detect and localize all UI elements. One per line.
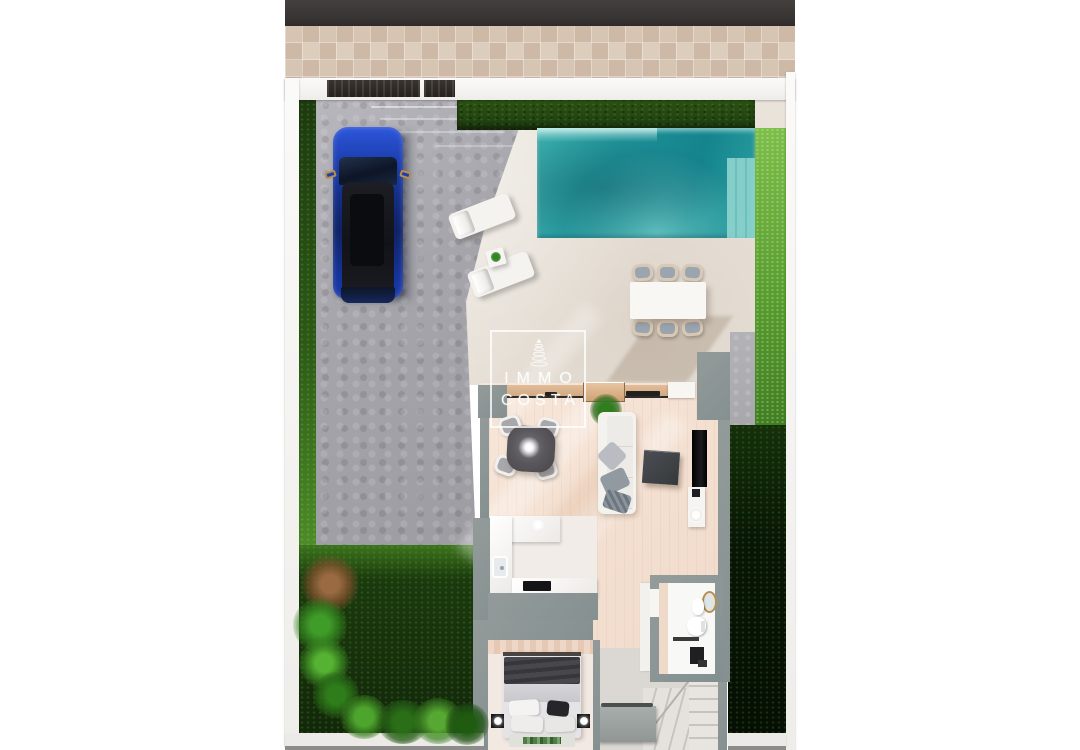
kitchen-sink xyxy=(492,556,508,578)
bath-shelf xyxy=(698,660,707,667)
curb-south-west xyxy=(285,746,484,750)
car-mirror-left xyxy=(324,169,337,179)
car-rear-window xyxy=(341,287,395,303)
wall-bedroom-north xyxy=(473,620,593,640)
wall-south-east xyxy=(728,733,786,746)
lounger-backrest xyxy=(452,210,476,238)
boundary-wall-west xyxy=(285,78,299,746)
outdoor-chair xyxy=(657,320,678,337)
outdoor-chair xyxy=(631,318,653,337)
bedroom-rug xyxy=(509,734,575,747)
blue-car xyxy=(333,127,403,299)
outdoor-chair xyxy=(681,318,703,337)
watermark-text-line2: COSTA xyxy=(492,392,584,410)
floorplan-render: IMMO COSTA xyxy=(0,0,1080,750)
round-mirror xyxy=(702,591,717,613)
outdoor-dining-table xyxy=(630,282,706,319)
bedside-lamp xyxy=(580,717,588,725)
wall-segment-white xyxy=(668,382,695,398)
swimming-pool xyxy=(537,128,755,238)
wall-kitchen-south xyxy=(488,593,598,620)
bed-pillow xyxy=(508,699,539,717)
watermark-frame: IMMO COSTA xyxy=(490,330,586,428)
hedge-west xyxy=(299,97,316,545)
pedestrian-gate xyxy=(424,80,455,97)
shrub xyxy=(445,703,489,745)
rug-pattern xyxy=(523,737,561,744)
washbasin xyxy=(692,598,704,615)
bathroom-wall-finish xyxy=(659,583,668,674)
bed-pillow xyxy=(545,716,576,733)
lighthouse-tower-icon xyxy=(528,336,550,370)
car-sunroof xyxy=(350,194,384,266)
stair-handrail xyxy=(601,703,653,707)
scene: IMMO COSTA xyxy=(285,0,795,750)
bathroom xyxy=(650,575,723,682)
bed-pillow xyxy=(511,715,544,733)
outdoor-chair xyxy=(681,263,703,281)
driveway-gate xyxy=(327,80,420,97)
round-dining-table xyxy=(506,425,556,473)
door-frame-handle xyxy=(626,391,660,396)
tiled-sidewalk xyxy=(285,26,795,78)
wall-block-northeast xyxy=(697,352,730,420)
counter-highlight xyxy=(531,520,545,530)
bed-blanket xyxy=(504,657,580,684)
speaker-box xyxy=(692,489,700,497)
bedside-lamp xyxy=(494,717,502,725)
coffee-table xyxy=(642,450,680,485)
outdoor-chair xyxy=(657,264,678,281)
bathroom-door-opening xyxy=(650,589,659,617)
shower-glass xyxy=(673,637,699,641)
bed-sheet xyxy=(504,684,580,702)
road-strip xyxy=(285,0,795,26)
tire-track xyxy=(435,145,515,147)
boundary-wall-east xyxy=(786,72,795,750)
grass-east xyxy=(755,128,786,433)
hedge-north xyxy=(457,97,755,130)
nightstand xyxy=(491,714,504,728)
bed-pillow-dark xyxy=(546,700,569,717)
watermark-text-line1: IMMO xyxy=(492,370,584,388)
headboard xyxy=(503,652,581,656)
pool-waterline xyxy=(537,128,657,142)
kitchen-counter-left xyxy=(490,516,512,594)
pool-steps xyxy=(727,158,755,238)
lounger-backrest xyxy=(471,268,495,296)
stair-landing xyxy=(598,706,656,742)
round-lamp xyxy=(690,509,702,521)
car-roof xyxy=(342,182,394,294)
hedge-southeast xyxy=(728,425,786,735)
potted-plant xyxy=(490,251,502,263)
curb-south-east xyxy=(728,746,786,750)
car-windshield xyxy=(339,157,397,185)
wall-west xyxy=(480,418,489,518)
nightstand xyxy=(577,714,590,728)
toilet xyxy=(687,617,706,636)
outdoor-chair xyxy=(631,263,653,281)
tv-screen xyxy=(692,430,707,487)
cooktop xyxy=(523,581,551,591)
